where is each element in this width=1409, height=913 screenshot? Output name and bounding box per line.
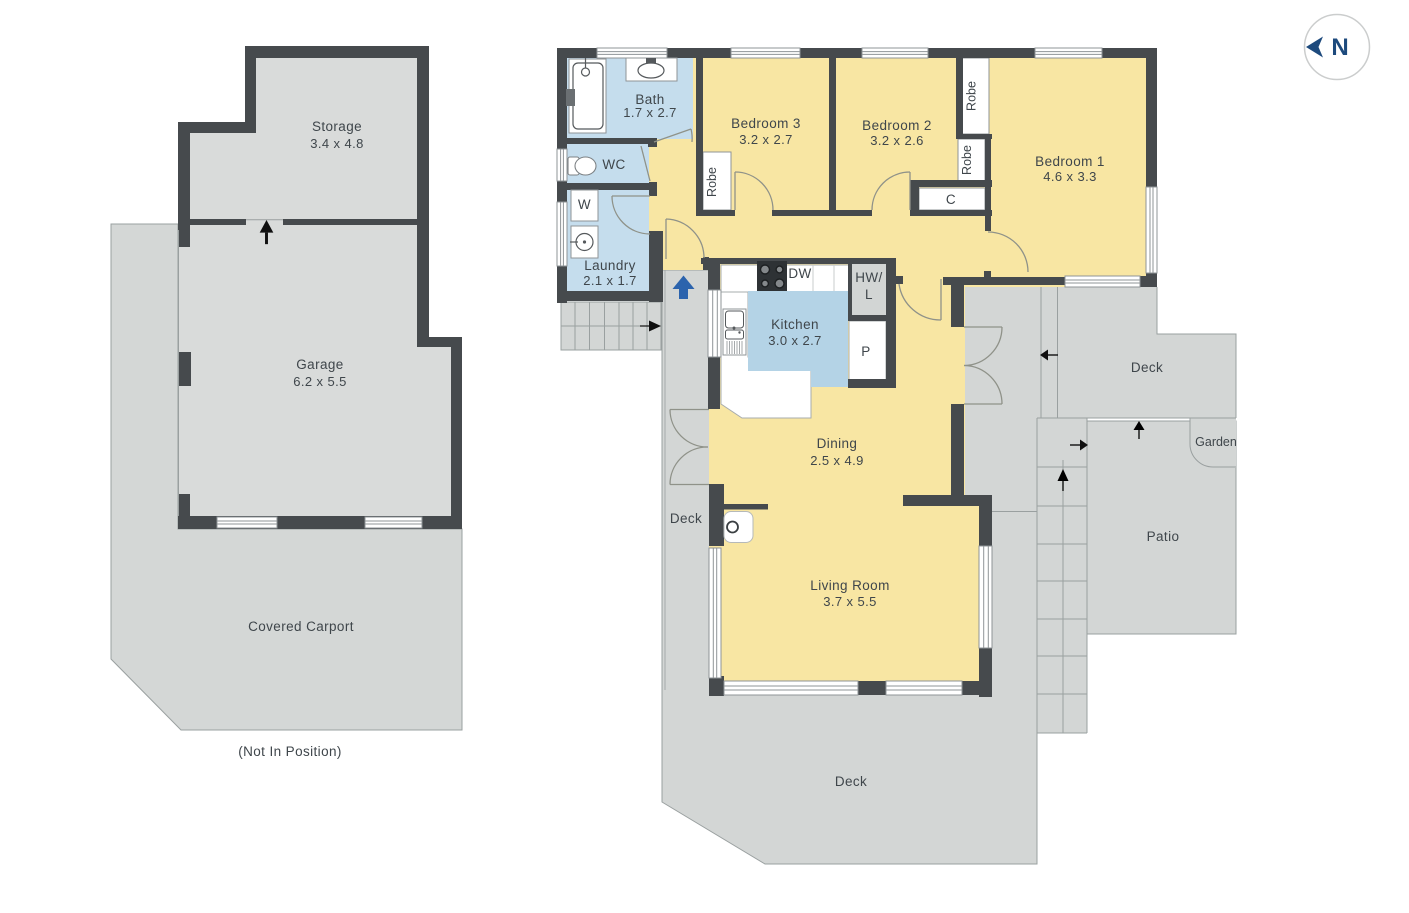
svg-text:Bedroom 2: Bedroom 2 bbox=[862, 118, 932, 133]
svg-text:3.4 x 4.8: 3.4 x 4.8 bbox=[310, 136, 363, 151]
svg-text:2.1 x 1.7: 2.1 x 1.7 bbox=[583, 273, 636, 288]
svg-text:3.7 x 5.5: 3.7 x 5.5 bbox=[823, 594, 876, 609]
svg-text:Covered Carport: Covered Carport bbox=[248, 619, 354, 634]
svg-text:Robe: Robe bbox=[965, 81, 979, 111]
svg-text:Bedroom 3: Bedroom 3 bbox=[731, 116, 801, 131]
svg-text:N: N bbox=[1331, 34, 1348, 61]
svg-text:Storage: Storage bbox=[312, 119, 362, 134]
svg-text:Garage: Garage bbox=[296, 357, 343, 372]
svg-text:3.2 x 2.6: 3.2 x 2.6 bbox=[870, 133, 923, 148]
svg-text:Dining: Dining bbox=[817, 436, 858, 451]
svg-text:Living Room: Living Room bbox=[810, 578, 889, 593]
svg-text:3.2 x 2.7: 3.2 x 2.7 bbox=[739, 132, 792, 147]
svg-text:W: W bbox=[578, 197, 591, 212]
svg-text:Bedroom 1: Bedroom 1 bbox=[1035, 154, 1105, 169]
svg-text:C: C bbox=[946, 192, 956, 207]
svg-text:2.5 x 4.9: 2.5 x 4.9 bbox=[810, 453, 863, 468]
svg-text:Laundry: Laundry bbox=[584, 258, 636, 273]
svg-text:Robe: Robe bbox=[705, 167, 719, 197]
svg-text:Deck: Deck bbox=[670, 511, 702, 526]
svg-text:HW/: HW/ bbox=[855, 270, 882, 285]
svg-text:P: P bbox=[861, 344, 870, 359]
svg-text:4.6 x 3.3: 4.6 x 3.3 bbox=[1043, 169, 1096, 184]
svg-text:3.0 x 2.7: 3.0 x 2.7 bbox=[768, 333, 821, 348]
svg-text:DW: DW bbox=[788, 266, 811, 281]
svg-text:6.2 x 5.5: 6.2 x 5.5 bbox=[293, 374, 346, 389]
svg-text:(Not In Position): (Not In Position) bbox=[238, 744, 342, 759]
svg-text:Deck: Deck bbox=[835, 774, 867, 789]
svg-text:Deck: Deck bbox=[1131, 360, 1163, 375]
svg-text:Kitchen: Kitchen bbox=[771, 317, 819, 332]
svg-text:1.7 x 2.7: 1.7 x 2.7 bbox=[623, 105, 676, 120]
svg-text:Robe: Robe bbox=[960, 145, 974, 175]
svg-text:L: L bbox=[865, 287, 873, 302]
svg-text:Patio: Patio bbox=[1147, 529, 1180, 544]
svg-text:Garden: Garden bbox=[1195, 435, 1237, 449]
svg-text:WC: WC bbox=[602, 157, 625, 172]
